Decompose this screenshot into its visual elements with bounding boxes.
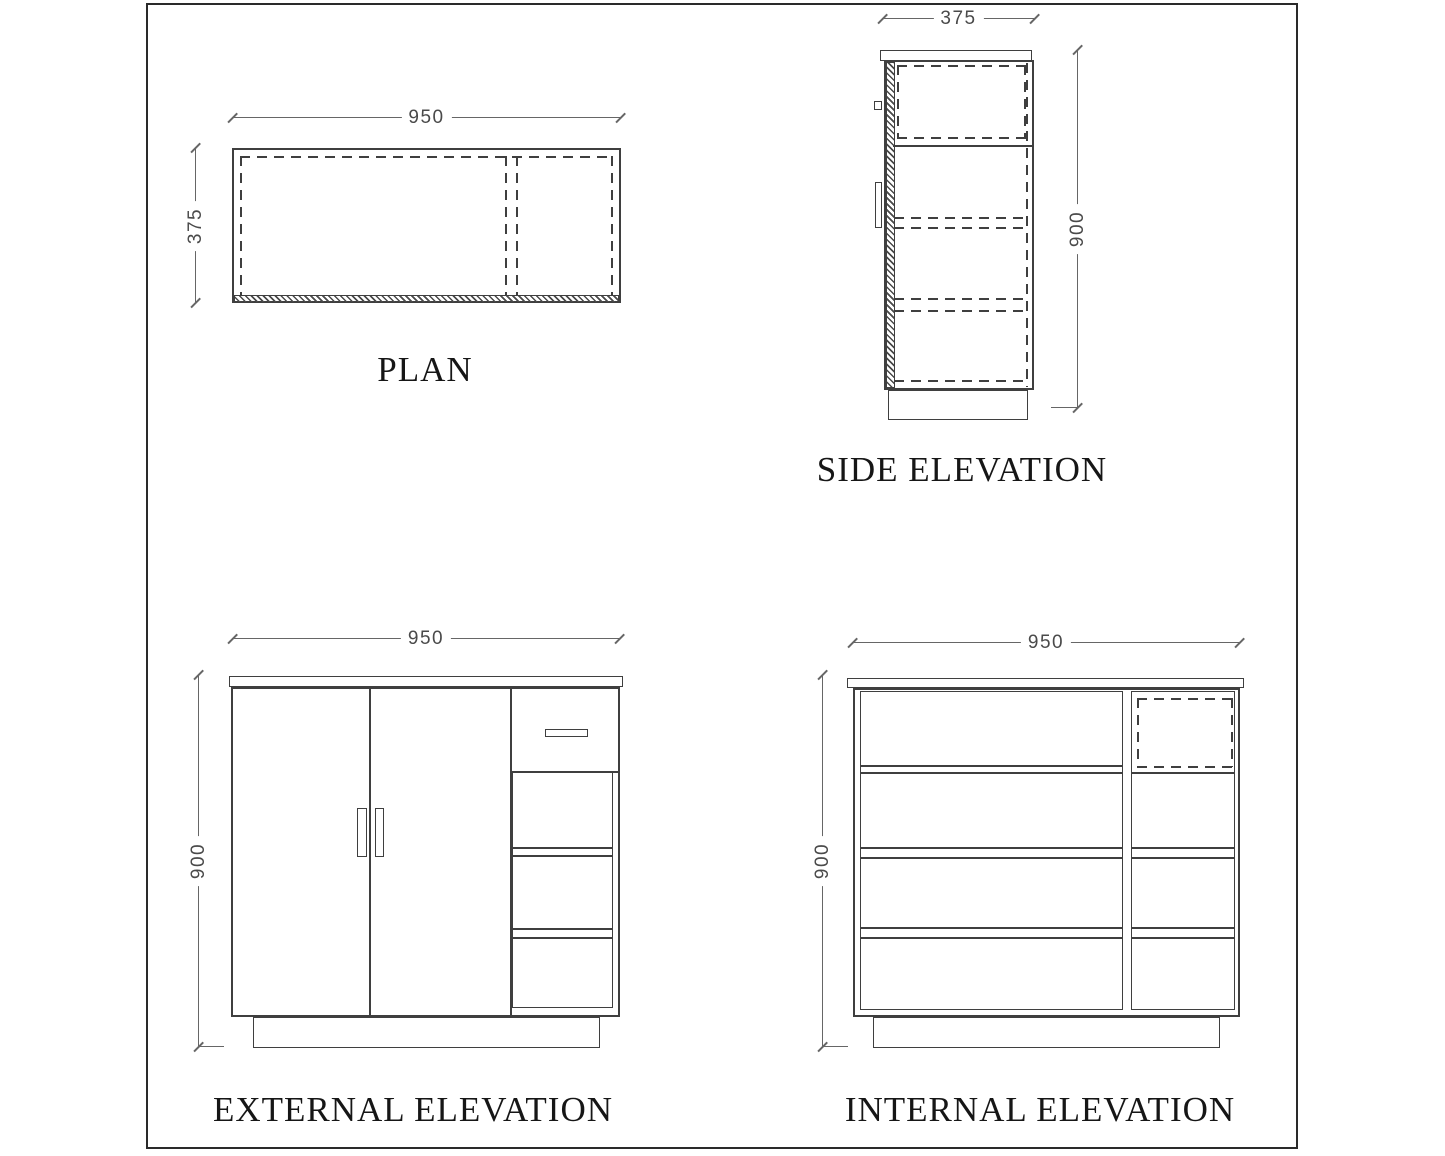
- dimension-tick: [847, 638, 857, 648]
- internal-shelf-line: [860, 765, 1123, 767]
- dimension-tick: [818, 670, 828, 680]
- internal-height-dimension-label: 900: [812, 836, 834, 886]
- drawing-canvas: 950 375 PLAN 375 900: [0, 0, 1445, 1156]
- internal-drawer-dashed-bottom: [1137, 766, 1233, 768]
- plan-carcass-dashed-right: [611, 156, 613, 295]
- external-shelf-line: [512, 937, 613, 939]
- plan-carcass-dashed-top: [240, 156, 612, 158]
- external-width-dimension-line: 950: [232, 638, 620, 639]
- dimension-tick: [1073, 45, 1083, 55]
- dimension-tick: [614, 634, 624, 644]
- dimension-stub: [1051, 407, 1077, 408]
- side-height-dimension-label: 900: [1067, 204, 1089, 254]
- dimension-tick: [227, 113, 237, 123]
- side-drawer-dashed-right: [1024, 65, 1026, 138]
- side-hinge-knob: [874, 101, 882, 110]
- dimension-tick: [191, 143, 201, 153]
- dimension-stub: [822, 1046, 848, 1047]
- external-door-divider-line: [369, 687, 371, 1017]
- side-width-dimension-line: 375: [882, 18, 1035, 19]
- plan-width-dimension-label: 950: [401, 107, 451, 129]
- external-shelf-line: [512, 855, 613, 857]
- internal-shelf-line: [860, 937, 1123, 939]
- plan-title: PLAN: [305, 350, 545, 390]
- internal-drawer-dashed-right: [1231, 698, 1233, 767]
- side-height-dimension-line: 900: [1077, 50, 1078, 408]
- external-shelf-line: [512, 928, 613, 930]
- internal-shelf-line: [860, 857, 1123, 859]
- internal-shelf-line: [1131, 772, 1235, 774]
- internal-top-panel: [847, 678, 1244, 688]
- external-width-dimension-label: 950: [401, 628, 451, 650]
- plan-partition-dashed-line: [505, 156, 507, 295]
- external-top-panel: [229, 676, 623, 687]
- internal-shelf-line: [860, 772, 1123, 774]
- side-drawer-dashed-left: [897, 65, 899, 138]
- external-drawer-slot-handle: [545, 729, 588, 737]
- internal-shelf-line: [1131, 857, 1235, 859]
- external-shelf-line: [512, 847, 613, 849]
- internal-width-dimension-label: 950: [1021, 632, 1071, 654]
- side-elevation-view: 375 900 SIDE ELEVATION: [810, 8, 1150, 500]
- internal-drawer-dashed-top: [1137, 698, 1233, 700]
- internal-shelf-line: [860, 927, 1123, 929]
- external-elevation-title: EXTERNAL ELEVATION: [180, 1090, 646, 1130]
- internal-elevation-title: INTERNAL ELEVATION: [800, 1090, 1280, 1130]
- plan-width-dimension-line: 950: [232, 117, 621, 118]
- side-plinth: [888, 390, 1028, 420]
- side-shelf-dashed-line: [894, 227, 1026, 229]
- internal-elevation-view: 950 900 INTERNAL ELEVATION: [800, 628, 1280, 1140]
- dimension-tick: [1029, 14, 1039, 24]
- side-bottom-dashed-line: [894, 380, 1026, 382]
- dimension-tick: [877, 14, 887, 24]
- internal-plinth: [873, 1017, 1220, 1048]
- internal-height-dimension-line: 900: [822, 675, 823, 1047]
- side-door-panel-hatch: [886, 62, 895, 388]
- side-back-dashed-line: [1026, 63, 1028, 387]
- plan-carcass-dashed-left: [240, 156, 242, 295]
- side-shelf-dashed-line: [894, 310, 1026, 312]
- side-drawer-rail-line: [893, 145, 1033, 147]
- dimension-tick: [227, 634, 237, 644]
- internal-shelf-line: [860, 847, 1123, 849]
- dimension-tick: [818, 1042, 828, 1052]
- plan-depth-dimension-label: 375: [185, 200, 207, 250]
- dimension-tick: [615, 113, 625, 123]
- side-drawer-dashed-bottom: [897, 137, 1026, 139]
- dimension-tick: [194, 1042, 204, 1052]
- plan-partition-dashed-line: [516, 156, 518, 295]
- external-shelf-compartment-box: [512, 771, 613, 1008]
- side-elevation-title: SIDE ELEVATION: [812, 450, 1112, 490]
- side-drawer-dashed-top: [897, 65, 1026, 67]
- plan-back-panel-hatch: [234, 295, 619, 303]
- dimension-tick: [1073, 403, 1083, 413]
- external-left-door-handle: [357, 808, 367, 857]
- side-shelf-dashed-line: [894, 298, 1026, 300]
- plan-depth-dimension-line: 375: [195, 148, 196, 303]
- side-width-dimension-label: 375: [933, 8, 983, 30]
- external-height-dimension-line: 900: [198, 675, 199, 1047]
- internal-shelf-line: [1131, 927, 1235, 929]
- side-door-handle: [875, 182, 882, 228]
- internal-right-column-box: [1131, 691, 1235, 1010]
- internal-width-dimension-line: 950: [852, 642, 1240, 643]
- external-elevation-view: 950 900 EXTERNAL ELEVATION: [180, 628, 660, 1140]
- internal-left-section-box: [860, 691, 1123, 1010]
- plan-view: 950 375 PLAN: [180, 105, 640, 405]
- dimension-tick: [191, 298, 201, 308]
- side-shelf-dashed-line: [894, 217, 1026, 219]
- internal-shelf-line: [1131, 937, 1235, 939]
- internal-drawer-dashed-left: [1137, 698, 1139, 767]
- internal-shelf-line: [1131, 847, 1235, 849]
- external-right-door-handle: [375, 808, 384, 857]
- external-height-dimension-label: 900: [188, 836, 210, 886]
- dimension-tick: [194, 670, 204, 680]
- plan-outline: [232, 148, 621, 303]
- dimension-stub: [198, 1046, 224, 1047]
- external-plinth: [253, 1017, 600, 1048]
- side-body-outline: [884, 60, 1034, 390]
- dimension-tick: [1234, 638, 1244, 648]
